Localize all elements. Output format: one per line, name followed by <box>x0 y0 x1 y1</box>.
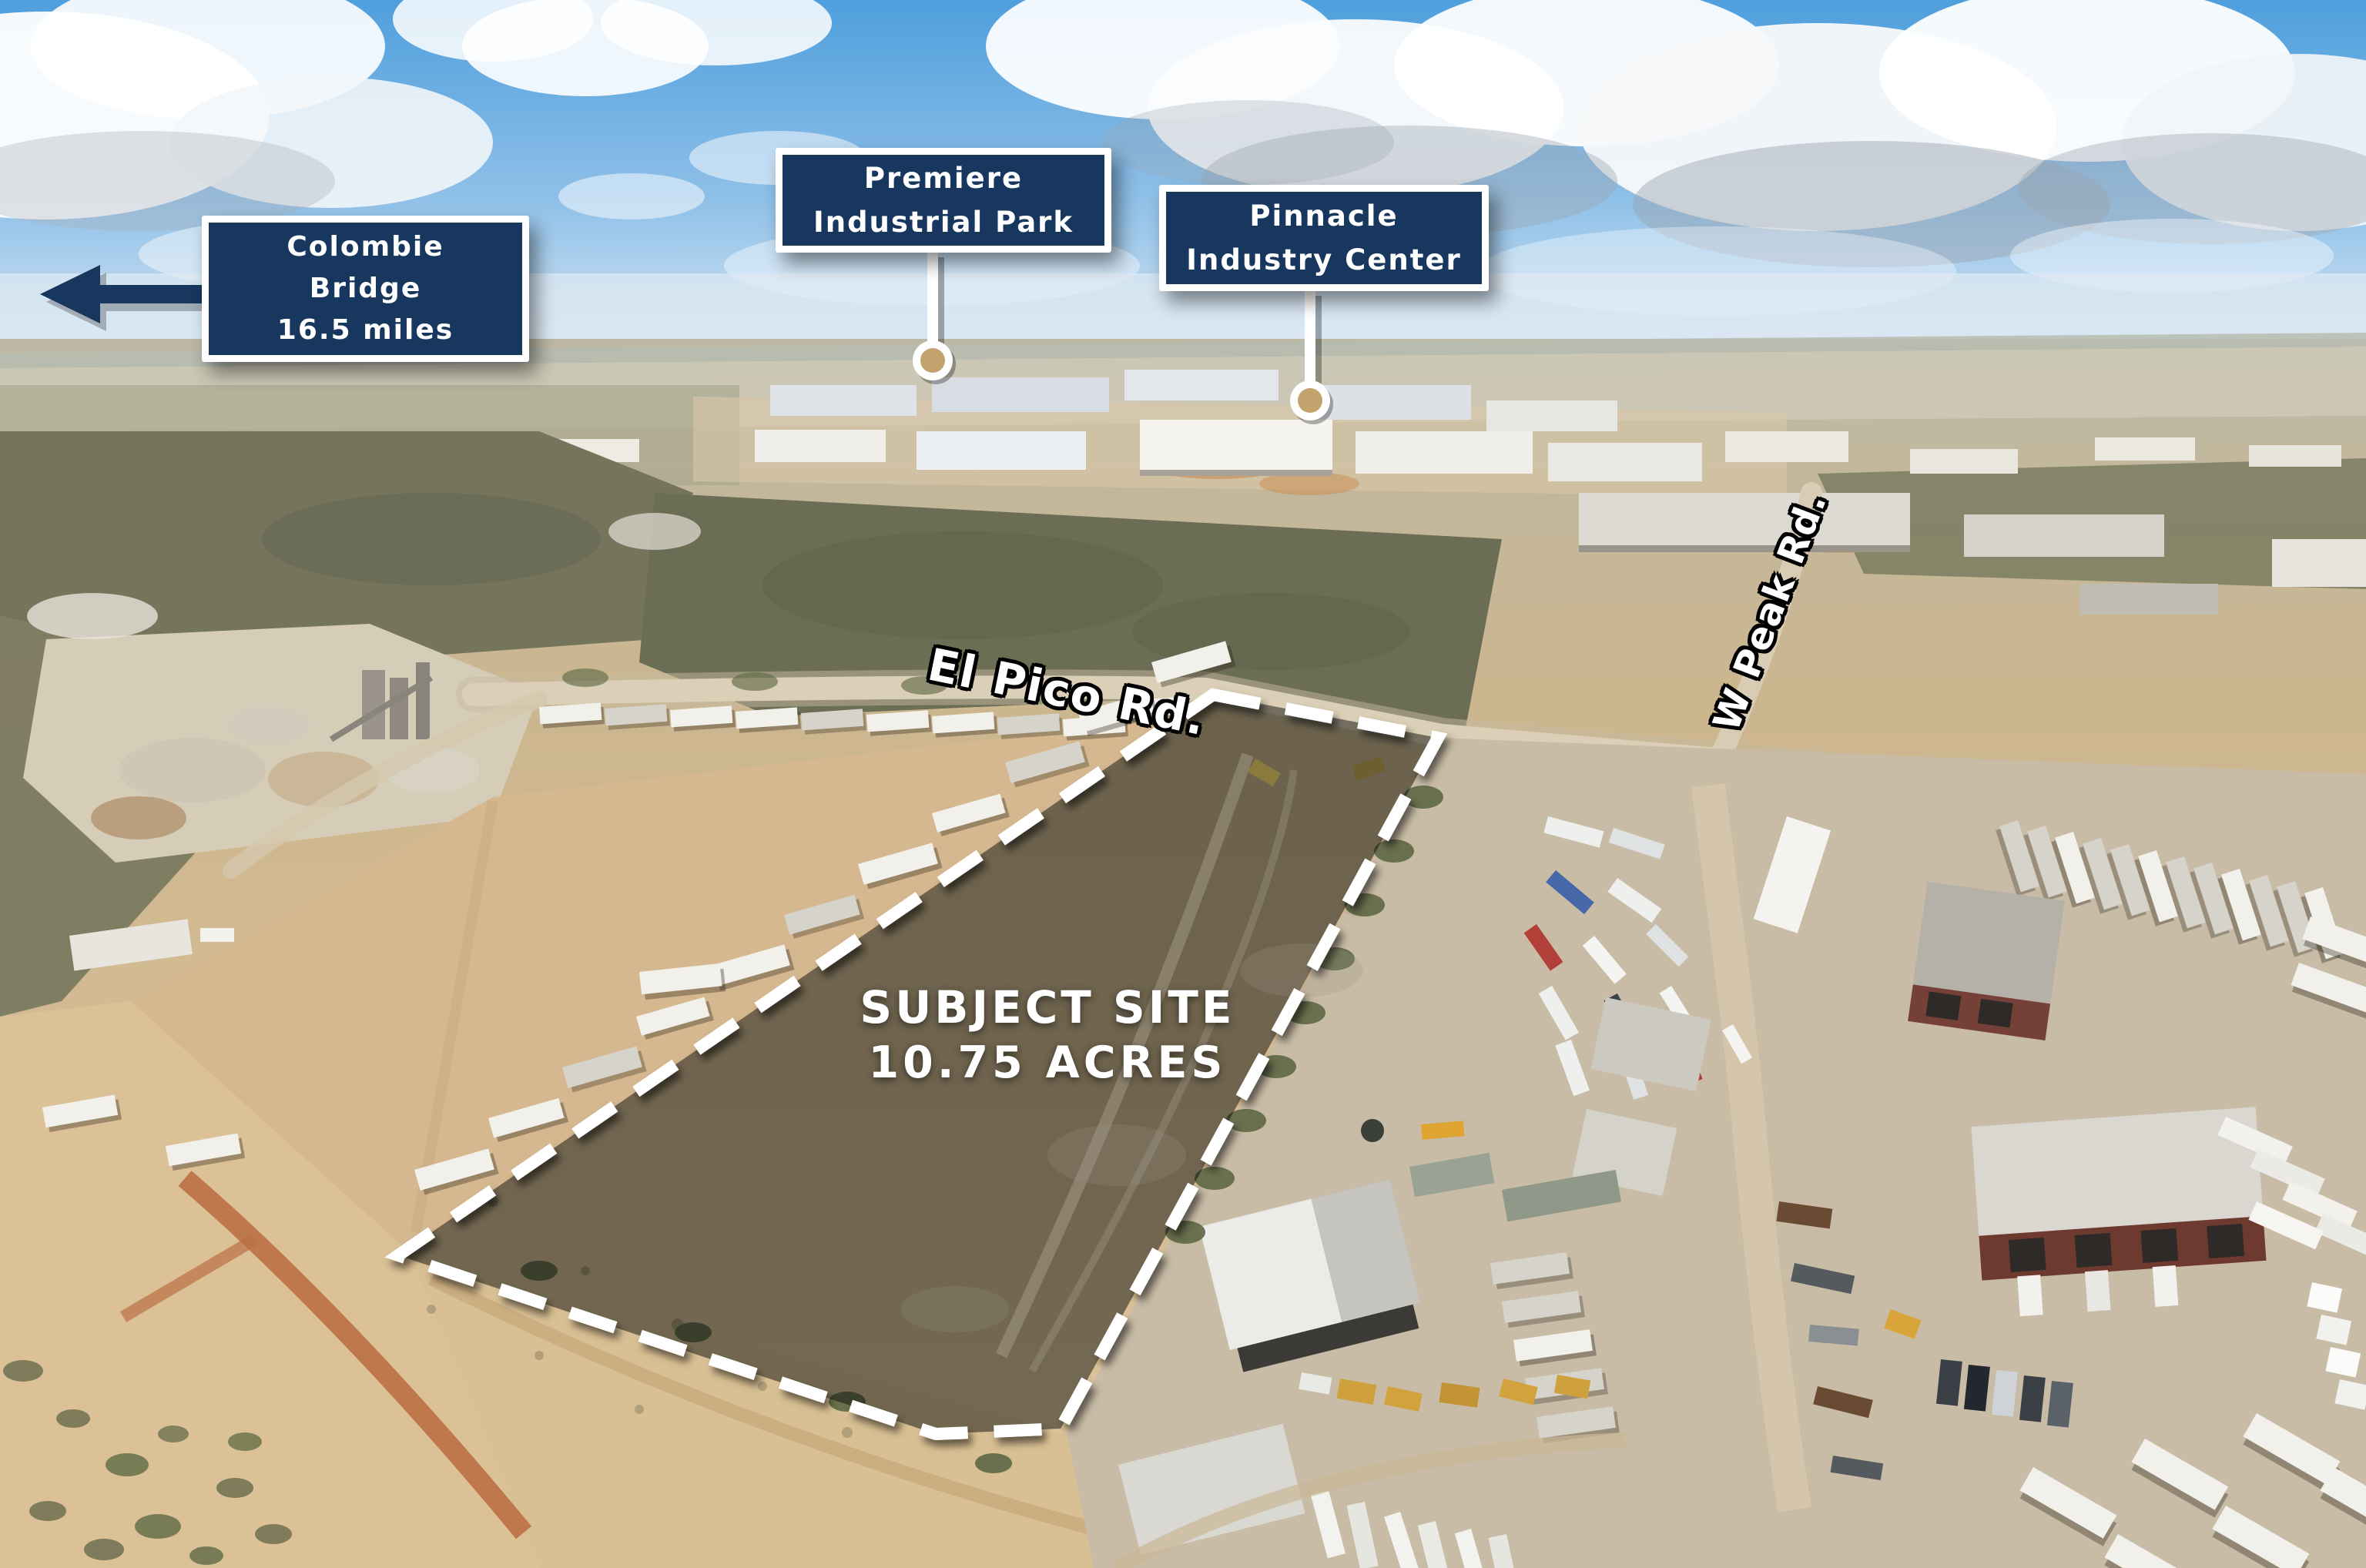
callout-line: Premiere <box>783 156 1104 200</box>
pinnacle-marker-dot <box>1298 388 1322 413</box>
callout-colombie-bridge: Colombie Bridge 16.5 miles <box>202 216 529 362</box>
premiere-marker-dot <box>920 348 945 373</box>
callout-line: 16.5 miles <box>209 310 522 351</box>
pinnacle-leader-line <box>1305 290 1315 384</box>
callout-pinnacle-industry-center: Pinnacle Industry Center <box>1159 185 1489 291</box>
callout-premiere-industrial-park: Premiere Industrial Park <box>776 148 1111 253</box>
callout-line: Industry Center <box>1166 238 1482 282</box>
callout-line: Pinnacle <box>1166 194 1482 238</box>
site-area: 10.75 ACRES <box>801 1035 1294 1091</box>
callout-line: Bridge <box>209 268 522 310</box>
subject-site-label: SUBJECT SITE 10.75 ACRES <box>801 980 1294 1091</box>
aerial-site-map: Colombie Bridge 16.5 miles Premiere Indu… <box>0 0 2366 1568</box>
premiere-leader-line <box>927 251 938 345</box>
callout-line: Industrial Park <box>783 200 1104 244</box>
site-name: SUBJECT SITE <box>801 980 1294 1035</box>
callout-line: Colombie <box>209 226 522 268</box>
